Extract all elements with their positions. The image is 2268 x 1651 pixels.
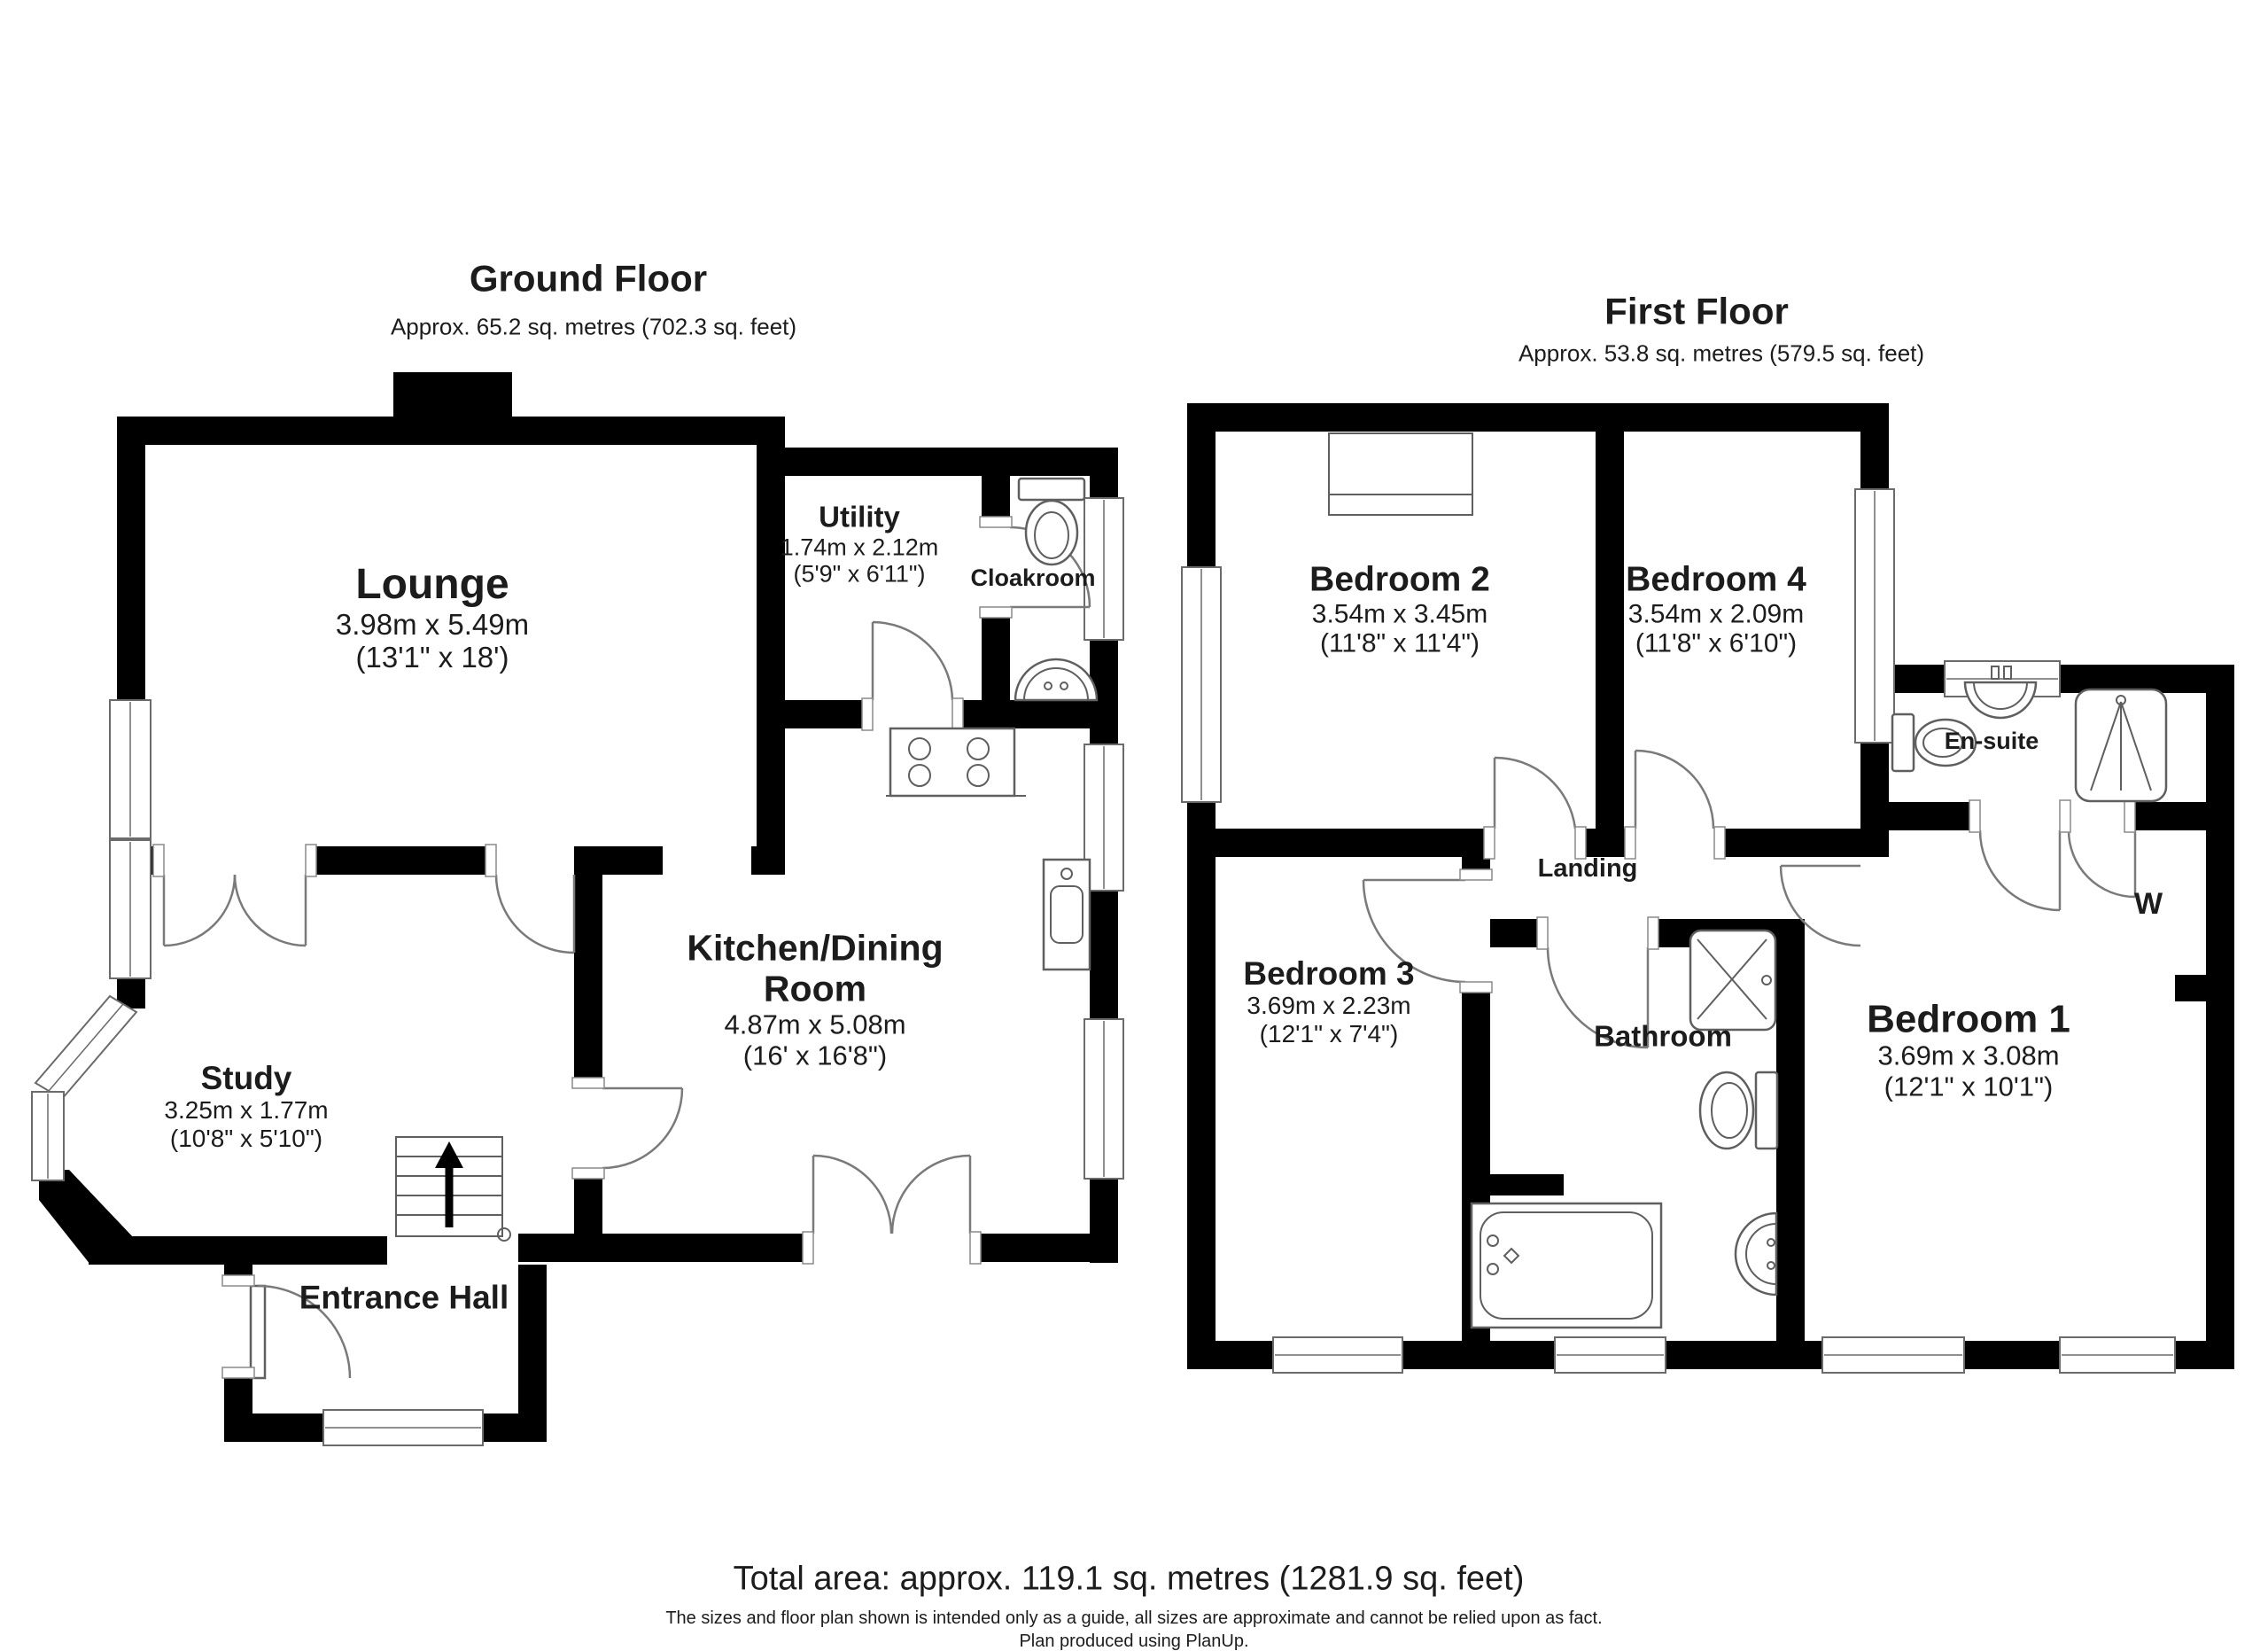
bathroom-label: Bathroom [1594,1021,1732,1054]
front-door-leaf [251,1286,265,1378]
staircase-icon [396,1137,510,1241]
bathroom-basin-icon [1736,1213,1776,1295]
landing-label: Landing [1538,854,1638,883]
study-label: Study 3.25m x 1.77m (10'8" x 5'10") [164,1060,328,1152]
bedroom3-label: Bedroom 3 3.69m x 2.23m (12'1" x 7'4") [1243,955,1414,1047]
entrance-hall-label: Entrance Hall [298,1279,510,1315]
cloakroom-label: Cloakroom [970,565,1095,591]
credit-text: Plan produced using PlanUp. [1019,1632,1248,1651]
lounge-label: Lounge 3.98m x 5.49m (13'1" x 18') [336,561,529,674]
first-floor-walls [1187,403,2234,1369]
bathroom-shower-icon [1690,931,1775,1030]
bedroom2-label: Bedroom 2 3.54m x 3.45m (11'8" x 11'4") [1309,561,1490,659]
floor-plan-canvas [0,0,2268,1650]
cloakroom-basin-icon [1015,659,1097,700]
bedroom4-label: Bedroom 4 3.54m x 2.09m (11'8" x 6'10") [1626,561,1806,659]
wardrobe-label: W [2134,887,2163,921]
floor-plan-page: { "ground_floor": { "title": "Ground Flo… [0,0,2268,1650]
ground-floor-subtitle: Approx. 65.2 sq. metres (702.3 sq. feet) [391,314,796,339]
ground-floor-plan [32,372,1123,1445]
first-floor-plan [1182,403,2234,1373]
ground-floor-title: Ground Floor [470,257,707,299]
kitchen-label: Kitchen/Dining Room 4.87m x 5.08m (16' x… [651,928,979,1071]
total-area-text: Total area: approx. 119.1 sq. metres (12… [734,1561,1525,1599]
hob-icon [886,728,1026,796]
ground-floor-walls [39,372,1118,1442]
utility-label: Utility 1.74m x 2.12m (5'9" x 6'11") [781,501,939,587]
disclaimer-text: The sizes and floor plan shown is intend… [665,1608,1602,1628]
cloakroom-toilet-icon [1019,479,1084,565]
ensuite-shower-icon [2076,689,2166,801]
bedroom2-bed-icon [1329,433,1472,515]
kitchen-sink-icon [1044,860,1090,970]
first-floor-title: First Floor [1604,290,1789,331]
bathroom-toilet-icon [1700,1072,1777,1149]
ensuite-label: En-suite [1945,728,2039,754]
bathtub-icon [1472,1203,1661,1328]
bedroom1-label: Bedroom 1 3.69m x 3.08m (12'1" x 10'1") [1867,998,2070,1103]
first-floor-subtitle: Approx. 53.8 sq. metres (579.5 sq. feet) [1518,340,1924,366]
